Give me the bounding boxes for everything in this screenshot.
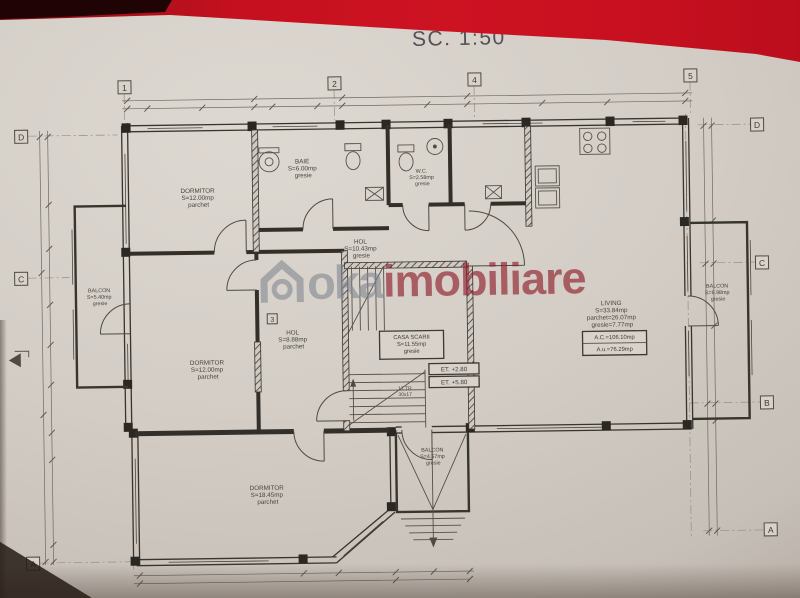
grid-bubble-B-right: B bbox=[760, 396, 773, 409]
room-label-balcon-left: BALCON S=5.40mp gresie bbox=[87, 288, 113, 307]
toilet-icon bbox=[398, 145, 414, 171]
toilet-icon bbox=[345, 144, 361, 170]
hatched-wall bbox=[255, 342, 262, 392]
room-label-wc: W.C. S=2.58mp gresie bbox=[409, 168, 435, 187]
svg-text:4: 4 bbox=[472, 75, 477, 85]
svg-text:2: 2 bbox=[332, 79, 337, 89]
ventilation-shaft-icon bbox=[485, 186, 501, 199]
svg-text:3: 3 bbox=[270, 317, 274, 324]
watermark-suffix: imobiliare bbox=[383, 255, 586, 304]
hatched-wall bbox=[525, 126, 532, 226]
steps-arrow bbox=[429, 538, 437, 548]
svg-text:CASA SCARII: CASA SCARII bbox=[393, 335, 430, 342]
svg-text:A.u.=76.29mp: A.u.=76.29mp bbox=[597, 347, 633, 354]
room-label-balcon-right: BALCON S=6.98mp gresie bbox=[705, 283, 731, 302]
watermark: oka imobiliare bbox=[256, 253, 586, 307]
level-box-et2: ET. +5.80 bbox=[429, 376, 479, 388]
balconies bbox=[72, 197, 755, 552]
grid-bubble-C-right: C bbox=[755, 256, 768, 269]
hatched-wall bbox=[252, 130, 260, 252]
grid-bubble-D-right: D bbox=[750, 118, 763, 131]
stove-icon bbox=[580, 128, 610, 154]
svg-text:A.C.=106.10mp: A.C.=106.10mp bbox=[594, 335, 635, 342]
level-box-et1: ET. +2.80 bbox=[429, 363, 479, 375]
ventilation-shaft-icon bbox=[365, 187, 383, 200]
section-marker bbox=[9, 351, 29, 367]
svg-text:gresie: gresie bbox=[404, 349, 420, 355]
kitchen-sink-icon bbox=[535, 166, 560, 208]
svg-text:D: D bbox=[754, 120, 760, 130]
room-label-hol-2: HOL S=8.88mp parchet bbox=[278, 329, 309, 350]
grid-bubble-1: 1 bbox=[118, 81, 131, 94]
photo-bottom-shadow bbox=[0, 564, 800, 598]
svg-text:C: C bbox=[759, 258, 765, 268]
svg-text:A: A bbox=[768, 525, 774, 535]
grid-bubble-D-left: D bbox=[15, 130, 28, 143]
room-label-baie: BAIE S=6.00mp gresie bbox=[288, 158, 319, 179]
grid-bubble-A-right: A bbox=[764, 523, 777, 536]
room-label-dormitor-1: DORMITOR S=12.00mp parchet bbox=[180, 188, 216, 209]
room-label-balcon-bottom: BALCON S=4.57mp gresie bbox=[420, 447, 446, 466]
sink-icon bbox=[427, 138, 443, 154]
svg-text:5: 5 bbox=[688, 71, 693, 81]
svg-text:C: C bbox=[18, 274, 24, 284]
stair-note: 17 TR 30x17 bbox=[398, 386, 412, 398]
grid-bubble-3: 3 bbox=[267, 314, 277, 324]
room-label-dormitor-3: DORMITOR S=18.45mp parchet bbox=[250, 485, 286, 506]
washing-machine-icon bbox=[259, 148, 279, 172]
svg-text:ET. +5.80: ET. +5.80 bbox=[441, 379, 468, 386]
stairwell-label-box: CASA SCARII S=11.55mp gresie bbox=[379, 330, 443, 359]
watermark-brand: oka bbox=[307, 257, 383, 305]
area-summary-box: A.C.=106.10mp A.u.=76.29mp bbox=[582, 331, 646, 356]
grid-bubble-2: 2 bbox=[328, 77, 341, 90]
svg-text:D: D bbox=[18, 132, 24, 142]
hatched-wall bbox=[344, 421, 350, 431]
grid-bubble-4: 4 bbox=[468, 73, 481, 86]
svg-text:30x17: 30x17 bbox=[398, 392, 412, 398]
grid-bubble-C-left: C bbox=[15, 272, 28, 285]
svg-text:ET. +2.80: ET. +2.80 bbox=[441, 366, 468, 373]
svg-text:1: 1 bbox=[122, 83, 127, 93]
room-label-living: LIVING S=33.84mp parchet=26.07mp gresie=… bbox=[587, 300, 638, 329]
grid-bubbles: 1 2 4 5 3 D C A D C B A bbox=[12, 68, 778, 571]
room-label-dormitor-2: DORMITOR S=12.00mp parchet bbox=[190, 359, 226, 380]
grid-bubble-5: 5 bbox=[684, 69, 697, 82]
photo-of-floor-plan: 1 2 4 5 3 D C A D C B A DORMITO bbox=[0, 0, 800, 598]
svg-text:B: B bbox=[764, 398, 770, 408]
photo-edge-shadow bbox=[0, 320, 7, 598]
svg-text:S=11.55mp: S=11.55mp bbox=[397, 342, 426, 348]
house-icon bbox=[256, 258, 309, 307]
